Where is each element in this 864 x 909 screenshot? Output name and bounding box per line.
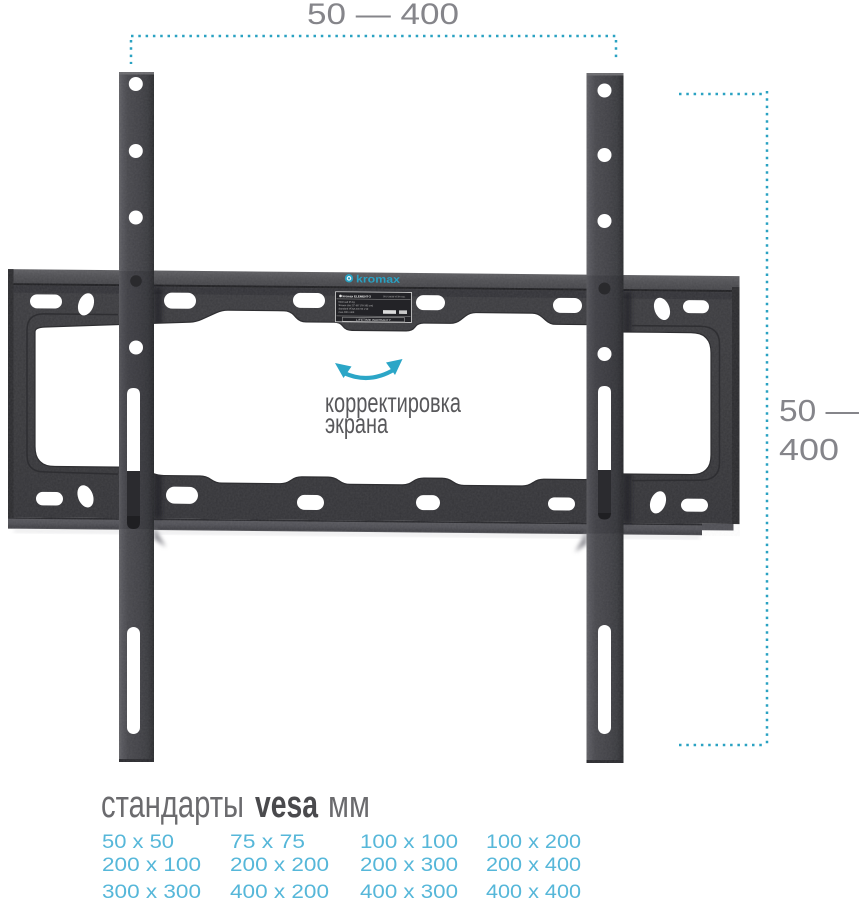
svg-text:400 x 300: 400 x 300 [360,881,458,903]
svg-text:300 x 300: 300 x 300 [102,881,201,903]
svg-text:SKU 20039 VESA max: SKU 20039 VESA max [383,295,406,298]
svg-text:100 x 200: 100 x 200 [486,831,581,853]
svg-text:400: 400 [779,432,839,467]
svg-text:мм: мм [328,784,370,826]
svg-text:LIFETIME WARRANTY: LIFETIME WARRANTY [356,318,391,322]
svg-text:kromax ELEMENT-3: kromax ELEMENT-3 [343,294,372,298]
svg-text:200 x 300: 200 x 300 [360,854,458,876]
svg-text:100 x 100: 100 x 100 [360,831,458,853]
svg-text:экрана: экрана [325,408,388,439]
svg-text:400 x 400: 400 x 400 [486,881,581,903]
svg-text:400 x 200: 400 x 200 [230,881,329,903]
svg-text:200 x 100: 200 x 100 [102,854,201,876]
svg-text:max 400 x 400: max 400 x 400 [339,311,355,314]
svg-text:75 x 75: 75 x 75 [230,831,305,853]
svg-text:vesa: vesa [255,784,319,826]
svg-text:200 x 400: 200 x 400 [486,854,581,876]
svg-text:стандарты: стандарты [101,784,244,826]
svg-text:50 — 400: 50 — 400 [307,0,459,31]
svg-text:kromax: kromax [356,273,400,285]
svg-text:50 x 50: 50 x 50 [102,831,174,853]
svg-text:200 x 200: 200 x 200 [230,854,329,876]
svg-text:50 —: 50 — [779,393,859,428]
